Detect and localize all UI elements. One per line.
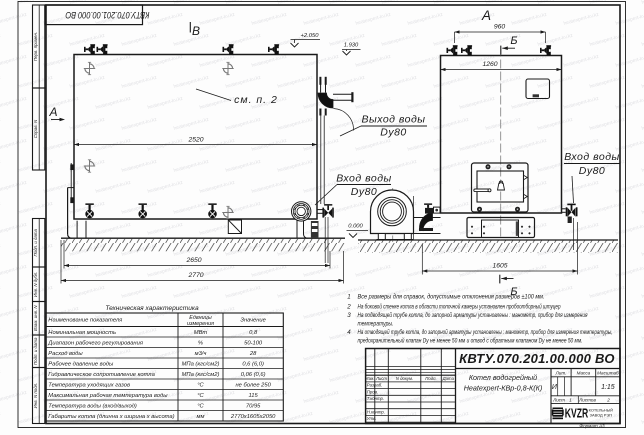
svg-text:Дата: Дата xyxy=(442,376,455,381)
svg-text:3: 3 xyxy=(347,312,351,319)
svg-text:KVZR: KVZR xyxy=(565,406,589,420)
svg-text:2: 2 xyxy=(346,304,351,311)
svg-text:Котел водогрейный: Котел водогрейный xyxy=(469,373,537,382)
svg-text:Справ. N: Справ. N xyxy=(33,119,38,138)
svg-text:Взам. инв. N: Взам. инв. N xyxy=(33,305,38,331)
svg-text:28: 28 xyxy=(249,351,257,357)
svg-text:Формат А3: Формат А3 xyxy=(579,424,605,429)
svg-text:Рабочее давление воды: Рабочее давление воды xyxy=(48,361,114,367)
svg-text:0.000: 0.000 xyxy=(348,224,363,230)
svg-text:Расход воды: Расход воды xyxy=(48,351,83,357)
svg-text:не более 250: не более 250 xyxy=(235,382,271,388)
svg-text:Все размеры для справок, допус: Все размеры для справок, допустимые откл… xyxy=(358,293,545,300)
svg-text:+2.050: +2.050 xyxy=(301,33,320,39)
svg-text:ЗАВОД РЭП: ЗАВОД РЭП xyxy=(590,413,612,418)
svg-text:Вход воды: Вход воды xyxy=(336,173,391,185)
svg-text:МВт: МВт xyxy=(194,330,208,336)
svg-text:Габариты котла (длинна х ширин: Габариты котла (длинна х ширина х высота… xyxy=(48,414,174,420)
svg-text:Значение: Значение xyxy=(240,318,266,324)
svg-text:N докум.: N докум. xyxy=(396,376,413,381)
svg-text:Выход воды: Выход воды xyxy=(361,114,425,126)
svg-text:Инв. N дубл.: Инв. N дубл. xyxy=(33,272,38,297)
svg-text:Лит.: Лит. xyxy=(555,371,567,376)
svg-text:115: 115 xyxy=(249,393,259,399)
svg-text:Инв. N подл.: Инв. N подл. xyxy=(33,383,38,409)
svg-text:0,8: 0,8 xyxy=(249,330,258,336)
svg-text:м3/ч: м3/ч xyxy=(195,351,207,357)
svg-text:Подп. и дата: Подп. и дата xyxy=(33,228,38,256)
svg-text:В: В xyxy=(192,24,200,38)
svg-text:2770х1605х2050: 2770х1605х2050 xyxy=(230,414,276,420)
svg-text:Лист: Лист xyxy=(375,376,387,381)
svg-text:0,6 (6,0): 0,6 (6,0) xyxy=(242,361,264,367)
svg-text:2: 2 xyxy=(606,397,610,402)
svg-text:На подводящей трубе котла, до: На подводящей трубе котла, до запорной а… xyxy=(358,312,589,319)
svg-text:Изм.: Изм. xyxy=(365,376,374,381)
svg-text:Масштаб: Масштаб xyxy=(597,371,619,376)
svg-text:1605: 1605 xyxy=(492,263,507,270)
svg-text:Heatexpert-КВр-0,8-К(К): Heatexpert-КВр-0,8-К(К) xyxy=(464,384,543,393)
svg-text:Вход воды: Вход воды xyxy=(564,151,619,163)
svg-text:мм: мм xyxy=(197,414,205,420)
svg-text:Максимальная рабочая температу: Максимальная рабочая температура воды xyxy=(48,393,168,399)
svg-text:Гидравлическое сопротивление к: Гидравлическое сопротивление котла xyxy=(48,372,155,378)
svg-text:температуры.: температуры. xyxy=(358,321,394,328)
svg-text:0,06 (0,6): 0,06 (0,6) xyxy=(241,372,266,378)
svg-text:Наименование показателя: Наименование показателя xyxy=(48,318,122,324)
svg-text:Подп. и дата: Подп. и дата xyxy=(33,337,38,365)
svg-text:Dy80: Dy80 xyxy=(351,186,378,198)
svg-text:%: % xyxy=(198,340,203,346)
svg-text:предохранительный клапан Dу не: предохранительный клапан Dу не менее 50 … xyxy=(358,337,583,344)
svg-text:КВТУ.070.201.00.000 ВО: КВТУ.070.201.00.000 ВО xyxy=(459,351,615,366)
svg-text:1:15: 1:15 xyxy=(601,384,615,391)
svg-text:70/95: 70/95 xyxy=(246,403,261,409)
svg-text:1260: 1260 xyxy=(482,61,497,68)
svg-text:50-100: 50-100 xyxy=(244,340,263,346)
svg-text:Техническая характеристика: Техническая характеристика xyxy=(105,305,199,312)
svg-text:1: 1 xyxy=(347,293,350,300)
svg-text:см. п. 2: см. п. 2 xyxy=(234,94,278,106)
svg-text:2770: 2770 xyxy=(187,272,203,279)
svg-text:Разраб.: Разраб. xyxy=(367,383,383,388)
svg-text:°С: °С xyxy=(197,382,204,388)
svg-text:Диапазон рабочего регулировани: Диапазон рабочего регулирования xyxy=(47,340,143,346)
svg-text:1: 1 xyxy=(569,397,572,402)
svg-text:Номинальная мощность: Номинальная мощность xyxy=(48,330,116,336)
svg-text:°С: °С xyxy=(197,403,204,409)
svg-text:Б: Б xyxy=(510,35,517,47)
svg-text:На отводящей трубе котла, до з: На отводящей трубе котла, до запорной ар… xyxy=(358,329,613,336)
svg-text:Листов: Листов xyxy=(578,397,596,402)
svg-text:Подп.: Подп. xyxy=(425,376,436,381)
svg-text:Масса: Масса xyxy=(577,371,591,376)
svg-text:2650: 2650 xyxy=(185,257,201,264)
svg-text:А: А xyxy=(48,105,57,119)
svg-text:измерения: измерения xyxy=(187,321,214,327)
svg-text:Т.контр.: Т.контр. xyxy=(367,396,384,401)
svg-text:2520: 2520 xyxy=(187,137,203,144)
svg-text:4: 4 xyxy=(347,329,351,336)
svg-text:КВТУ.070.201.00.000 ВО: КВТУ.070.201.00.000 ВО xyxy=(65,10,149,20)
svg-text:Пров.: Пров. xyxy=(367,389,378,394)
svg-text:МПа (кгс/см2): МПа (кгс/см2) xyxy=(182,372,220,378)
svg-text:А: А xyxy=(481,8,491,23)
svg-text:°С: °С xyxy=(197,393,204,399)
svg-text:Температура воды (вход/выход): Температура воды (вход/выход) xyxy=(48,403,137,409)
svg-text:Температура уходящих газов: Температура уходящих газов xyxy=(48,382,130,388)
svg-text:На боковой стенке котла в обла: На боковой стенке котла в области топочн… xyxy=(358,304,561,311)
svg-text:Утв.: Утв. xyxy=(367,416,377,421)
svg-text:Dy80: Dy80 xyxy=(579,165,606,177)
svg-text:Н.контр.: Н.контр. xyxy=(367,409,385,414)
svg-text:960: 960 xyxy=(494,24,506,31)
svg-text:Перв. примен.: Перв. примен. xyxy=(33,32,38,61)
svg-text:1.930: 1.930 xyxy=(344,43,359,49)
svg-text:Dy80: Dy80 xyxy=(380,127,407,139)
svg-text:МПа (кгс/см2): МПа (кгс/см2) xyxy=(182,361,220,367)
svg-text:Лист: Лист xyxy=(552,397,565,402)
